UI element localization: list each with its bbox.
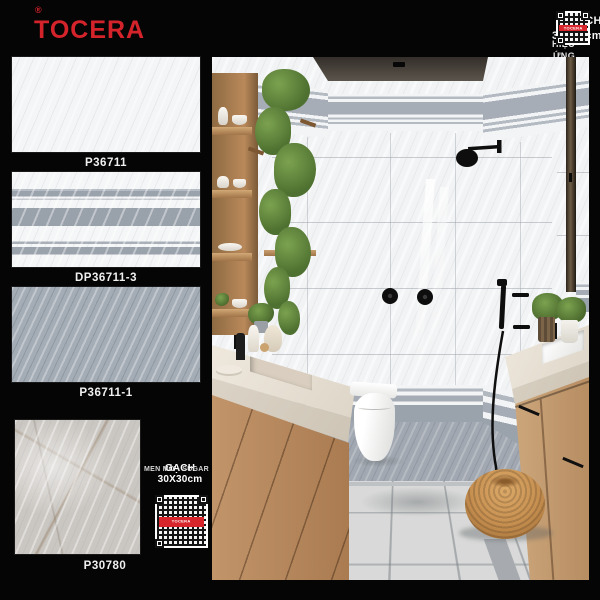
woven-plant-pot bbox=[538, 317, 555, 342]
pouf-dimple bbox=[488, 475, 522, 488]
tile-swatch-dp36711-3 bbox=[12, 172, 200, 267]
qr-finder-icon bbox=[581, 11, 590, 20]
toilet-seat-line bbox=[358, 405, 391, 410]
qr-code-top: TOCERA bbox=[556, 11, 590, 45]
tile-swatch-p36711-1 bbox=[12, 287, 200, 382]
shelf-board bbox=[212, 253, 252, 261]
qr-code-bottom: TOCERA bbox=[155, 495, 208, 548]
floor-tile-finish-label: MEN MỜ - SUGAR bbox=[144, 466, 209, 473]
qr-finder-icon bbox=[556, 36, 565, 45]
toilet bbox=[354, 393, 395, 461]
counter-plate bbox=[216, 365, 242, 374]
tile-swatch-p30780 bbox=[15, 420, 140, 554]
shelf-board bbox=[212, 127, 252, 135]
brand-name: TOCERA bbox=[34, 16, 145, 44]
soap-bottle bbox=[236, 333, 245, 360]
tile-code-label: P36711 bbox=[12, 157, 200, 169]
tile-swatch-p36711 bbox=[12, 57, 200, 152]
shelf-vase bbox=[218, 107, 228, 125]
bathroom-render bbox=[212, 57, 589, 580]
hanging-ivy-plant bbox=[262, 69, 310, 111]
sink-basin bbox=[250, 344, 312, 391]
tile-code-label: DP36711-3 bbox=[12, 272, 200, 284]
qr-finder-icon bbox=[199, 495, 208, 504]
shelf-plates bbox=[218, 243, 242, 251]
brand-logo: TOCERA® bbox=[34, 16, 145, 45]
white-plant-pot bbox=[561, 320, 578, 343]
trademark-symbol: ® bbox=[35, 5, 43, 15]
shelf-vase bbox=[217, 176, 229, 188]
qr-brand-text: TOCERA bbox=[564, 26, 583, 30]
tile-code-label: P30780 bbox=[40, 560, 170, 572]
white-vase bbox=[248, 325, 259, 352]
shelf-bowl bbox=[232, 299, 247, 308]
qr-finder-icon bbox=[155, 495, 164, 504]
qr-finder-icon bbox=[556, 11, 565, 20]
shelf-bowl bbox=[233, 179, 246, 188]
qr-brand-band: TOCERA bbox=[159, 517, 204, 527]
shelf-board bbox=[212, 309, 252, 317]
shelf-board bbox=[212, 190, 252, 198]
hanging-ivy-plant bbox=[278, 301, 300, 335]
qr-finder-icon bbox=[155, 539, 164, 548]
qr-brand-text: TOCERA bbox=[172, 520, 191, 524]
poster-canvas: TOCERA® GẠCH 30X60cm KTS - HIỆU ỨNG TOCE… bbox=[0, 0, 600, 600]
shelf-bowl bbox=[232, 115, 247, 125]
wood-ball-decor bbox=[260, 343, 269, 352]
tile-code-label: P36711-1 bbox=[12, 387, 200, 399]
qr-brand-band: TOCERA bbox=[559, 25, 588, 31]
